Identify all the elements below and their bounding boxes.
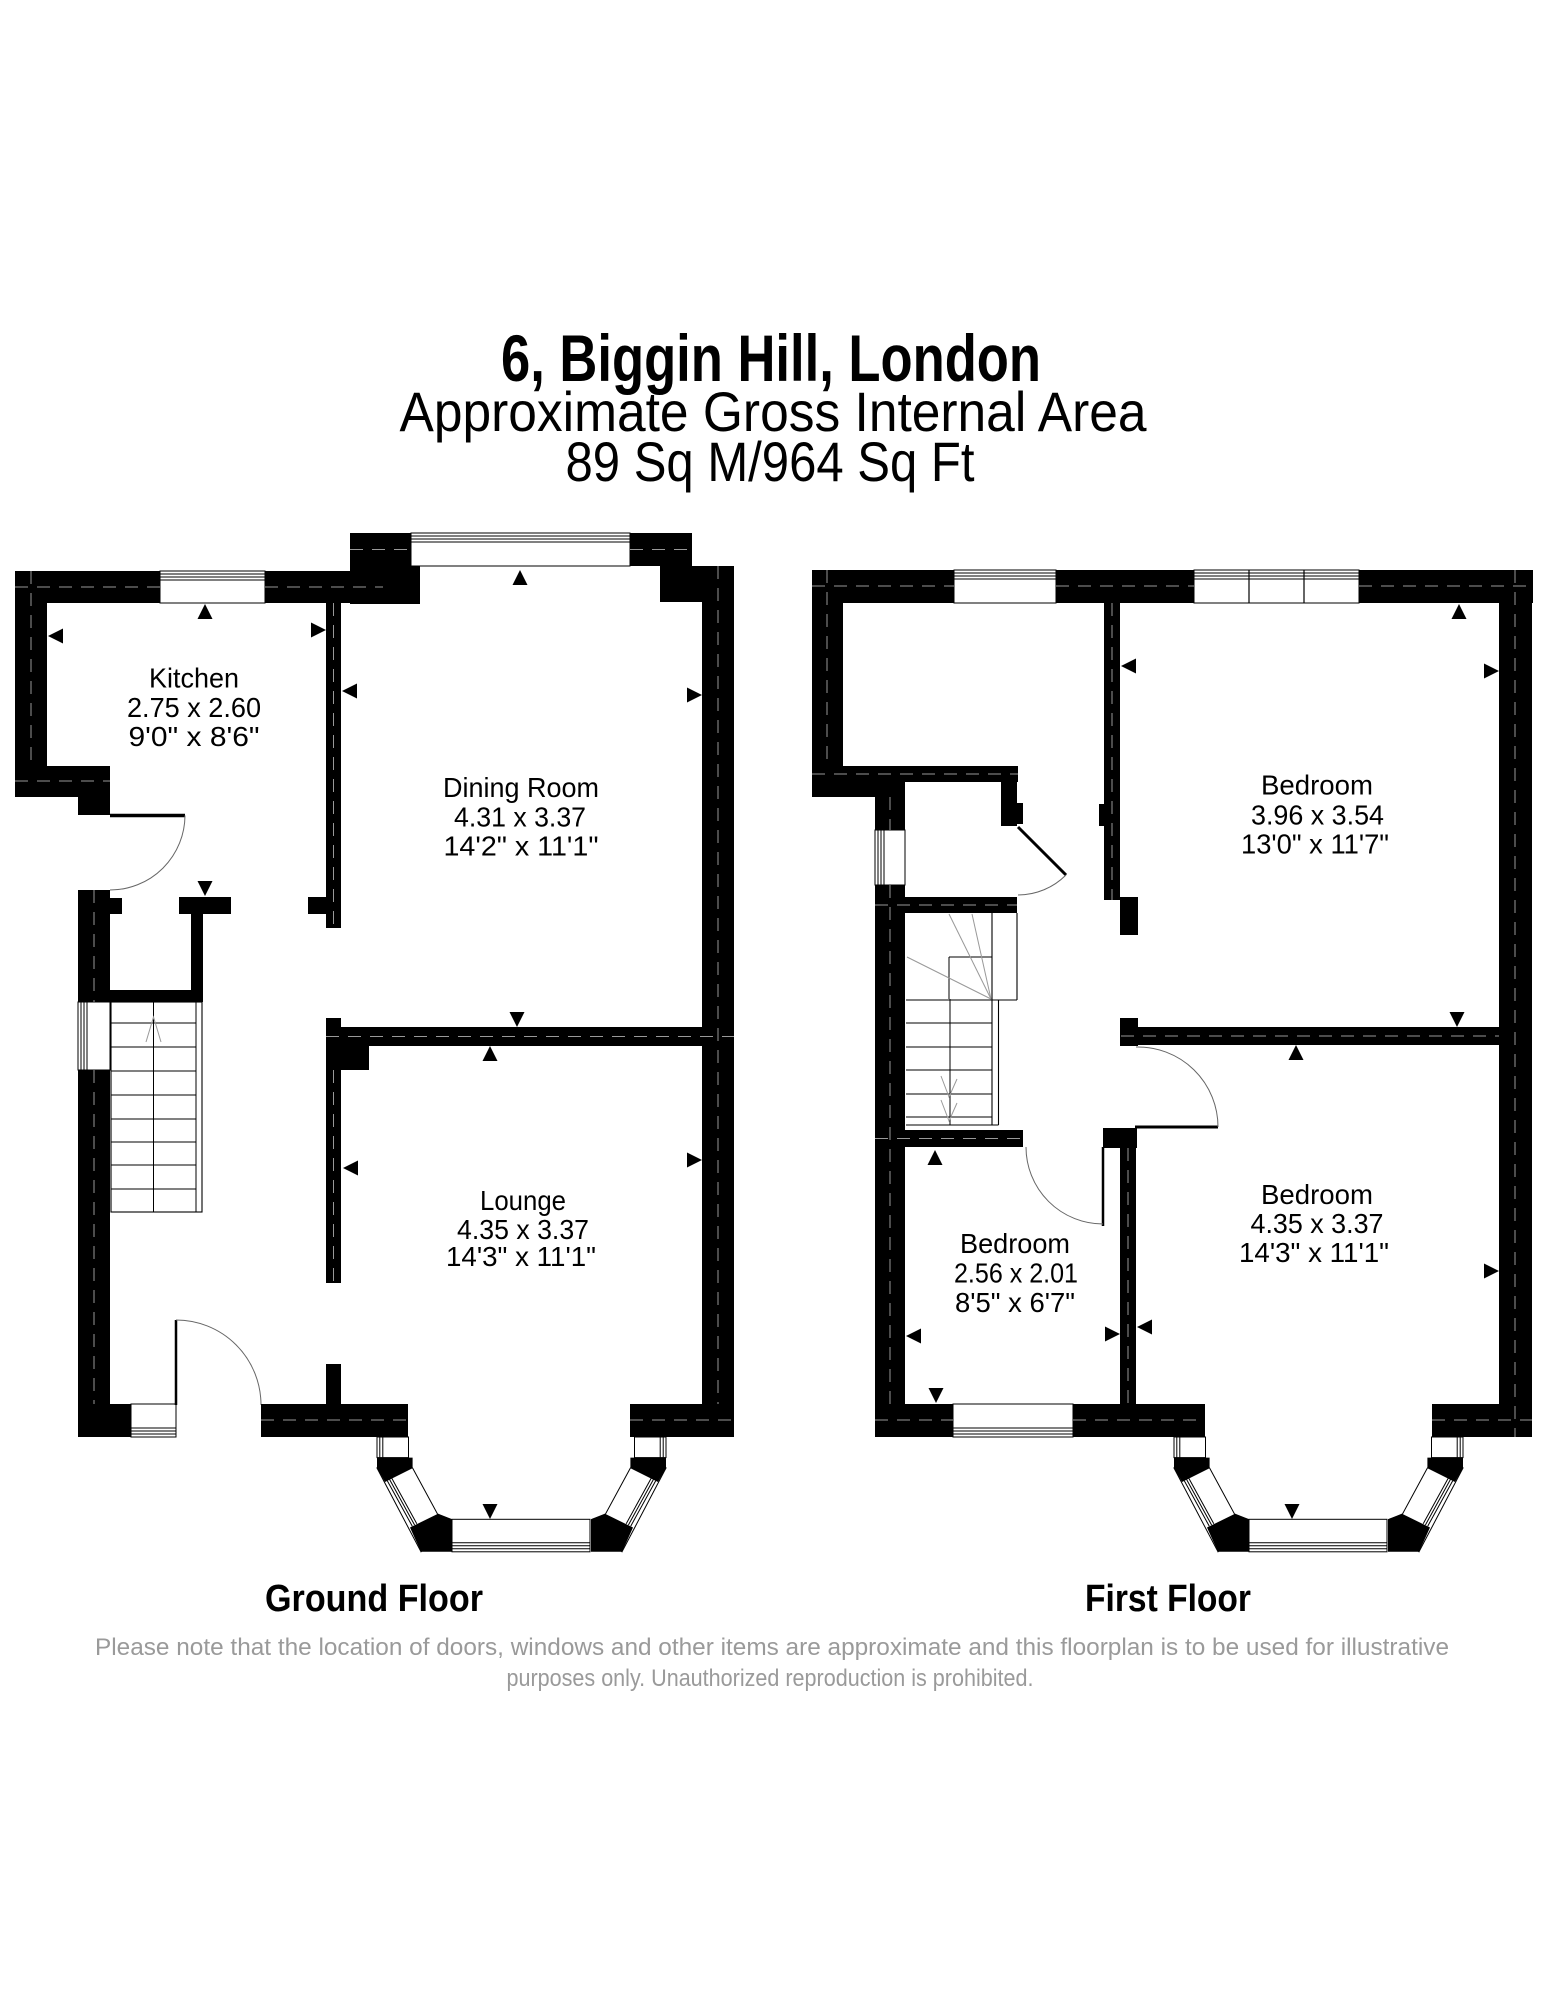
svg-text:Dining Room: Dining Room [443, 772, 599, 803]
svg-text:purposes only. Unauthorized re: purposes only. Unauthorized reproduction… [507, 1665, 1034, 1692]
svg-text:Bedroom: Bedroom [1261, 770, 1373, 801]
svg-text:14'2" x 11'1": 14'2" x 11'1" [444, 831, 599, 862]
svg-text:14'3" x 11'1": 14'3" x 11'1" [1239, 1237, 1389, 1268]
svg-text:8'5" x 6'7": 8'5" x 6'7" [955, 1287, 1075, 1318]
svg-text:89 Sq M/964 Sq Ft: 89 Sq M/964 Sq Ft [566, 430, 975, 493]
svg-text:2.75 x 2.60: 2.75 x 2.60 [127, 692, 261, 723]
svg-text:Bedroom: Bedroom [1261, 1179, 1373, 1210]
svg-text:2.56 x 2.01: 2.56 x 2.01 [954, 1258, 1078, 1289]
svg-text:4.35 x 3.37: 4.35 x 3.37 [1251, 1208, 1384, 1239]
svg-text:3.96 x 3.54: 3.96 x 3.54 [1251, 800, 1384, 831]
svg-text:Please note that the location: Please note that the location of doors, … [95, 1634, 1449, 1661]
svg-text:4.31 x 3.37: 4.31 x 3.37 [454, 802, 586, 833]
svg-text:13'0" x 11'7": 13'0" x 11'7" [1241, 829, 1389, 860]
svg-text:First Floor: First Floor [1085, 1578, 1251, 1620]
svg-text:Lounge: Lounge [480, 1185, 566, 1216]
svg-text:Ground Floor: Ground Floor [265, 1578, 483, 1620]
svg-text:Bedroom: Bedroom [960, 1228, 1070, 1259]
svg-text:9'0" x 8'6": 9'0" x 8'6" [129, 721, 260, 752]
svg-text:Kitchen: Kitchen [149, 663, 239, 694]
svg-text:14'3" x 11'1": 14'3" x 11'1" [446, 1241, 596, 1272]
